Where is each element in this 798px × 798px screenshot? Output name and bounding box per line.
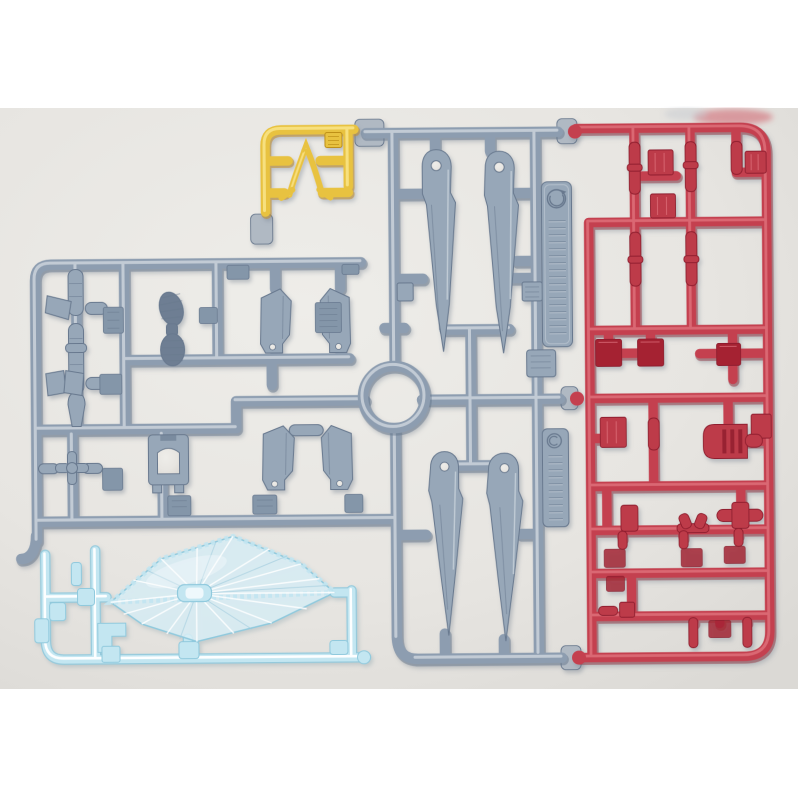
blade-hole xyxy=(440,462,449,471)
clip-part xyxy=(71,563,81,586)
detail-plate xyxy=(522,282,542,301)
peg-connector-part xyxy=(177,584,211,601)
clip-part xyxy=(50,603,66,621)
bracket-part xyxy=(148,435,188,493)
clip-part xyxy=(102,646,120,662)
molded-tag-upper xyxy=(541,182,572,347)
flat-tab-part xyxy=(325,132,342,147)
photo-canvas xyxy=(0,0,798,798)
detail-plate xyxy=(527,350,556,377)
molded-tag-lower xyxy=(542,429,569,527)
blade-hole xyxy=(431,161,441,171)
clip-part xyxy=(330,640,348,654)
flap-part xyxy=(64,370,84,395)
clip-part xyxy=(179,642,199,659)
detail-plate xyxy=(397,283,413,301)
clip-part xyxy=(77,588,94,605)
runner-junction-cap xyxy=(572,651,586,665)
clip-part xyxy=(35,619,49,643)
runner-junction-cap xyxy=(568,125,582,139)
runner-junction-cap xyxy=(570,392,584,406)
flap-part xyxy=(46,371,66,396)
defocused-gray-smudge xyxy=(664,108,708,120)
blade-hole xyxy=(494,162,504,172)
runner-joint-nub xyxy=(251,214,273,244)
runner-junction-cap xyxy=(357,651,370,664)
joint-capsule xyxy=(599,606,618,615)
product-photo xyxy=(0,0,798,798)
thruster-box-part xyxy=(620,602,635,617)
thruster-box-part xyxy=(621,505,638,531)
joint-capsule-bar xyxy=(289,425,323,436)
blade-hole xyxy=(500,464,509,473)
